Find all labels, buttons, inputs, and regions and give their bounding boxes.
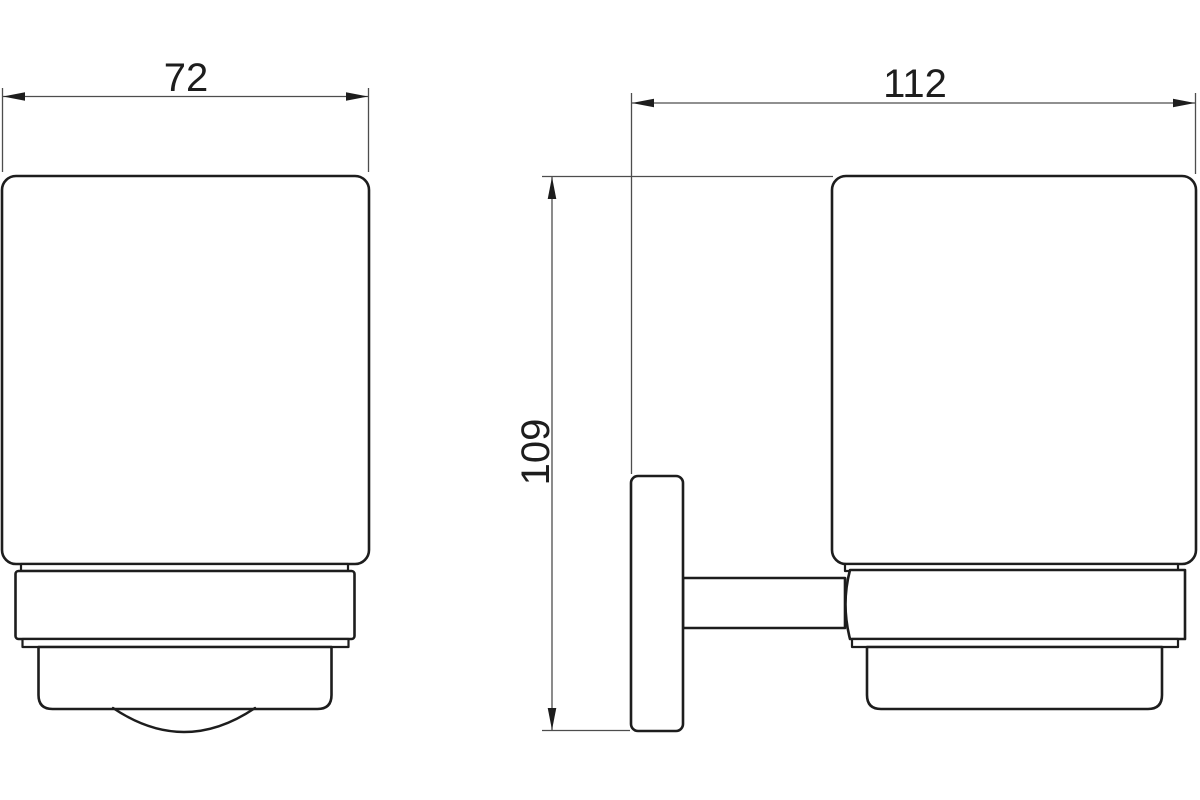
dimension-label-side-height: 109 — [514, 419, 558, 486]
dimension-front-width: 72 — [3, 56, 369, 172]
front-cup-bottom-arc — [113, 708, 255, 732]
arrowhead-top-icon — [548, 177, 557, 199]
arrowhead-left-icon — [3, 92, 25, 101]
dimension-label-front-width: 72 — [164, 56, 209, 100]
side-lower-cup — [867, 647, 1162, 709]
dimension-label-side-width: 112 — [883, 62, 947, 106]
arrowhead-right-icon — [1173, 99, 1195, 108]
side-holder-ring — [846, 570, 1186, 639]
drawing-canvas: 72 112 109 — [0, 0, 1200, 800]
arrowhead-right-icon — [346, 92, 368, 101]
mounting-arm — [683, 578, 845, 628]
side-view — [631, 176, 1196, 731]
arrowhead-bottom-icon — [548, 708, 557, 730]
technical-drawing: 72 112 109 — [0, 0, 1200, 800]
front-cup-body — [2, 176, 369, 564]
wall-plate — [631, 476, 683, 731]
front-view — [2, 176, 369, 732]
arrowhead-left-icon — [632, 99, 654, 108]
front-lower-cup — [39, 647, 332, 709]
side-cup-body — [832, 176, 1196, 564]
front-holder-ring — [16, 571, 355, 639]
